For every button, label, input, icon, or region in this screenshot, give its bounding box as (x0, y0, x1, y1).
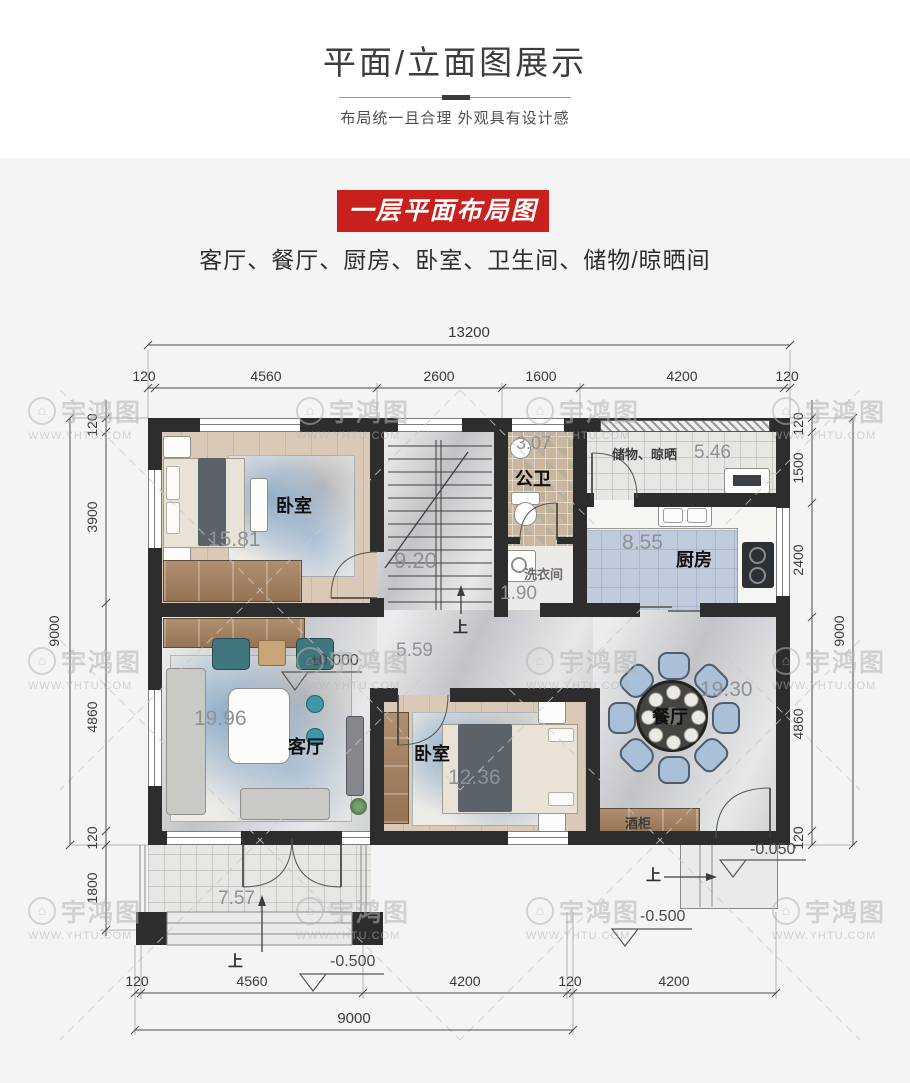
sofa-bench (240, 788, 330, 820)
bath-area: 3.07 (516, 433, 551, 454)
pillow (548, 728, 574, 742)
dim-bottom-2: 4200 (449, 973, 480, 989)
level-entry: -0.050 (750, 841, 795, 859)
wall (587, 603, 640, 617)
plate (666, 685, 681, 700)
tv-console (346, 716, 364, 796)
dim-left-1: 3900 (84, 501, 100, 532)
dim-top-4: 4200 (666, 368, 697, 384)
wall (370, 688, 398, 702)
bedroom1-label: 卧室 (276, 492, 312, 518)
porch-column (352, 912, 383, 945)
dim-bottom-3: 120 (558, 973, 581, 989)
stair-hall-floor (377, 425, 502, 617)
dim-left-3: 120 (84, 826, 100, 849)
burner (749, 547, 766, 564)
dim-left-4: 1800 (84, 872, 100, 903)
porch-column (136, 912, 167, 945)
wall (634, 493, 776, 507)
dim-left-total: 9000 (46, 615, 62, 646)
nightstand (163, 436, 191, 458)
burner (749, 567, 766, 584)
bedroom2-label: 卧室 (414, 740, 450, 766)
laundry-area: 1.90 (500, 583, 537, 605)
wall (148, 831, 790, 845)
wall (586, 688, 600, 831)
dim-top-0: 120 (132, 368, 155, 384)
wall (776, 418, 790, 845)
side-table (258, 640, 286, 666)
dim-right-1: 1500 (790, 452, 806, 483)
bed-bench (250, 478, 268, 532)
section-banner: 一层平面布局图 (337, 190, 549, 232)
living-label: 客厅 (288, 733, 324, 759)
wall (540, 603, 587, 617)
page-subtitle: 布局统一且合理 外观具有设计感 (0, 107, 910, 128)
laundry-label: 洗衣间 (524, 564, 563, 583)
dining-area: 19.30 (700, 678, 753, 702)
porch-steps (167, 912, 352, 945)
entry-up-label: 上 (646, 864, 661, 885)
dim-right-4: 120 (790, 826, 806, 849)
sink-basin (663, 508, 683, 523)
window (508, 831, 568, 845)
kitchen-label: 厨房 (676, 546, 712, 572)
plate (666, 735, 681, 750)
armchair (212, 638, 250, 670)
bedroom1-area: 15.81 (208, 528, 261, 552)
plate (691, 710, 706, 725)
dim-right-total: 9000 (831, 615, 847, 646)
window (512, 418, 564, 432)
pillow (548, 792, 574, 806)
wall (370, 418, 384, 552)
sink-basin (687, 508, 707, 523)
wall (700, 603, 776, 617)
wall (450, 688, 600, 702)
storage-area: 5.46 (694, 442, 731, 464)
wall (573, 418, 587, 617)
dim-top-1: 4560 (250, 368, 281, 384)
bedroom2-area: 12.36 (448, 766, 501, 790)
level-ground: ±0.000 (310, 652, 359, 670)
window (148, 470, 162, 548)
stool (306, 695, 324, 713)
plant (350, 798, 367, 815)
window (342, 831, 370, 845)
living-area: 19.96 (194, 707, 247, 731)
kitchen-area: 8.55 (622, 531, 663, 555)
window (200, 418, 300, 432)
dining-chair (608, 702, 636, 734)
porch-floor (148, 838, 371, 912)
sofa (166, 668, 206, 815)
hall-area: 5.59 (396, 640, 433, 662)
dim-left-0: 120 (84, 413, 100, 436)
console-screen (733, 475, 761, 486)
window (398, 418, 462, 432)
dining-label: 餐厅 (652, 703, 688, 729)
room-list: 客厅、餐厅、厨房、卧室、卫生间、储物/晾晒间 (0, 241, 910, 275)
page: 平面/立面图展示 布局统一且合理 外观具有设计感 一层平面布局图 客厅、餐厅、厨… (0, 0, 910, 1083)
page-title: 平面/立面图展示 (0, 36, 910, 84)
window (776, 508, 790, 596)
dim-right-2: 2400 (790, 544, 806, 575)
level-outdoor: -0.500 (640, 908, 685, 926)
pillow (166, 502, 180, 534)
dining-chair (658, 756, 690, 784)
title-divider-accent (442, 95, 470, 100)
toilet-bowl (514, 502, 537, 526)
console-table (724, 468, 770, 494)
nightstand (538, 700, 566, 724)
wall (587, 493, 594, 507)
bedroom2-wardrobe (381, 712, 409, 824)
level-outdoor: -0.500 (330, 953, 375, 971)
storage-label: 储物、晾晒 (612, 444, 677, 463)
dining-chair (712, 702, 740, 734)
wall (557, 537, 573, 544)
dim-left-2: 4860 (84, 701, 100, 732)
screen-wall (600, 420, 770, 432)
window (167, 831, 241, 845)
dim-right-3: 4860 (790, 708, 806, 739)
stair-up-label: 上 (453, 616, 468, 637)
porch-up-label: 上 (228, 950, 243, 971)
wall (148, 603, 384, 617)
dining-chair (658, 652, 690, 680)
wall (508, 537, 520, 544)
bedroom1-wardrobe (163, 560, 302, 602)
bath-label: 公卫 (515, 465, 551, 491)
porch-area: 7.57 (218, 888, 255, 910)
stair-area: 9.20 (394, 548, 437, 574)
pillow (166, 466, 180, 500)
dim-top-3: 1600 (525, 368, 556, 384)
dim-bottom-4: 4200 (658, 973, 689, 989)
dim-top-2: 2600 (423, 368, 454, 384)
dim-bottom-total: 9000 (337, 1010, 370, 1027)
wine-cabinet-label: 酒柜 (625, 813, 651, 832)
window (148, 690, 162, 786)
stove (742, 542, 774, 588)
dim-top-5: 120 (775, 368, 798, 384)
dim-top-total: 13200 (448, 324, 490, 341)
dim-bottom-0: 120 (125, 973, 148, 989)
wall (370, 688, 384, 831)
dim-bottom-1: 4560 (236, 973, 267, 989)
dim-right-0: 120 (790, 412, 806, 435)
